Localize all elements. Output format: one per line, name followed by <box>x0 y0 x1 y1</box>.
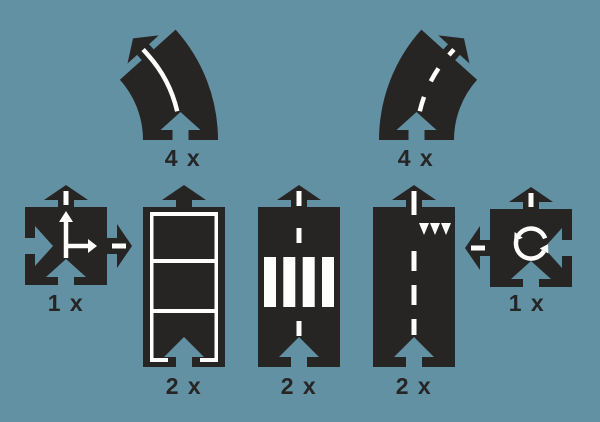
top-long-dash <box>412 191 417 215</box>
straight-road-dashed-yield-icon <box>373 185 455 367</box>
zebra-bar-1 <box>264 257 276 307</box>
zebra-bar-4 <box>322 257 334 307</box>
count-label-dashed: 2 x <box>354 373 474 400</box>
grid-bottom-line-right <box>200 358 218 362</box>
up-arrow-line <box>64 221 69 258</box>
right-tab-dash <box>112 244 126 249</box>
center-dash-upper <box>297 228 302 243</box>
curved-road-piece-solid-line-icon <box>118 28 222 142</box>
grid-left-line <box>150 212 154 362</box>
right-arrow-line <box>68 244 89 249</box>
zebra-bar-3 <box>303 257 315 307</box>
center-dash-1 <box>412 251 417 271</box>
straight-road-zebra-crossing-icon <box>258 185 340 367</box>
top-tab-dash <box>64 191 69 205</box>
center-dash-3 <box>412 319 417 335</box>
left-tab-dash <box>471 246 485 251</box>
grid-mid-line-2 <box>150 309 218 313</box>
straight-road-lane-grid-icon <box>143 185 225 367</box>
grid-right-line <box>215 212 219 362</box>
t-junction-body <box>25 185 132 285</box>
t-junction-connector-icon <box>25 185 132 285</box>
center-dash-lower <box>297 321 302 336</box>
arrow-dash <box>297 191 302 206</box>
count-label-zebra: 2 x <box>239 373 359 400</box>
top-tab-dash <box>529 193 534 207</box>
count-label-roundabout: 1 x <box>467 290 587 317</box>
count-label-curve-solid: 4 x <box>123 145 243 172</box>
roundabout-connector-icon <box>465 187 572 287</box>
zebra-bar-2 <box>283 257 295 307</box>
grid-bottom-line-left <box>150 358 168 362</box>
grid-mid-line-1 <box>150 259 218 263</box>
count-label-curve-dashed: 4 x <box>356 145 476 172</box>
curve-right-body <box>379 30 477 140</box>
count-label-grid: 2 x <box>124 373 244 400</box>
curved-road-piece-dashed-line-icon <box>375 28 479 142</box>
count-label-t-junction: 1 x <box>6 290 126 317</box>
center-dash-2 <box>412 285 417 305</box>
road-pieces-diagram: 4 x 4 x 1 x 2 x <box>0 0 600 422</box>
grid-top-line <box>150 212 218 216</box>
